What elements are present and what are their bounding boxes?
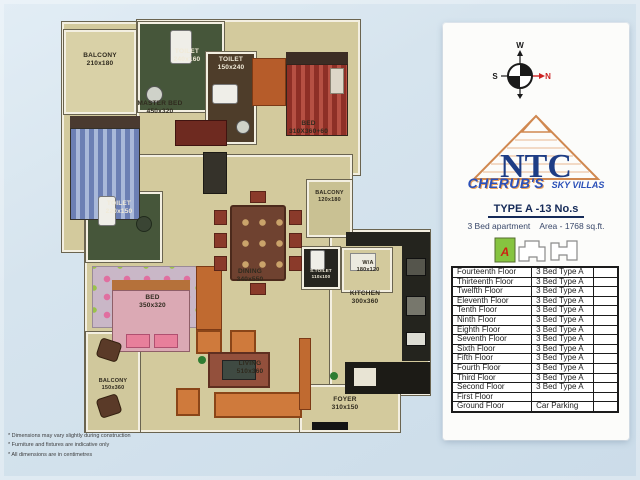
floor-extra-cell [593,392,618,402]
room-balcony-right [307,180,352,237]
footnotes: * Dimensions may vary slightly during co… [8,432,131,460]
kitchen-appliance [406,258,426,276]
floor-type-cell: 3 Bed Type A [532,287,594,297]
room-dims: 300x360 [330,298,400,306]
room-name: MASTER BED [105,100,215,108]
room-dims: 310x150 [300,404,390,412]
apartment-info-beds: 3 Bed apartment [467,221,530,231]
room-label-living: LIVING 510x360 [210,360,290,376]
floor-type-cell: Car Parking [532,402,594,412]
room-label-balcony-right: BALCONY 120x180 [307,190,352,204]
floor-name-cell: Ninth Floor [452,315,532,325]
washbasin [212,84,238,104]
shower-icon [236,120,250,134]
floor-name-cell: Fourteenth Floor [452,267,532,277]
dining-chair [250,191,266,203]
floor-table-row: Twelfth Floor3 Bed Type A [452,287,618,297]
room-label-master-bed: MASTER BED 450x320 [105,100,215,116]
floor-name-cell: Twelfth Floor [452,287,532,297]
room-dims: 120x180 [307,197,352,204]
dining-chair [289,233,302,248]
room-dims: 150x240 [206,64,256,72]
living-armchair [176,388,200,416]
type-title: TYPE A -13 No.s [443,203,629,215]
brochure-page: BALCONY 210x180 TOILET 240x160 TOILET 15… [0,0,640,480]
room-name: KITCHEN [330,290,400,298]
floor-table-row: Second Floor3 Bed Type A [452,383,618,393]
room-label-s-toilet: S.TOILET 110x100 [302,268,340,279]
terrace-accent [252,58,286,106]
living-armchair [196,330,222,354]
footnote-line: * All dimensions are in centimetres [8,451,131,460]
floor-type-cell: 3 Bed Type A [532,383,594,393]
floor-extra-cell [593,335,618,345]
room-label-bed3: BED 350x320 [110,294,195,310]
floor-extra-cell [593,344,618,354]
floor-extra-cell [593,306,618,316]
room-label-balcony-bottom-left: BALCONY 150x360 [86,378,140,392]
master-wardrobe [175,120,227,146]
floor-type-cell: 3 Bed Type A [532,315,594,325]
floor-table-row: Ninth Floor3 Bed Type A [452,315,618,325]
bed2-pillow [330,68,344,94]
room-name: TOILET [150,48,224,56]
footnote-line: * Dimensions may vary slightly during co… [8,432,131,441]
room-name: W/A [342,260,394,267]
plant-icon [330,372,338,380]
brand-name: CHERUB'S [468,175,545,191]
room-label-wa: W/A 180x120 [342,260,394,274]
bed3-pillow [154,334,178,348]
floor-extra-cell [593,383,618,393]
floor-type-cell: 3 Bed Type A [532,335,594,345]
room-label-dining: DINING 340x550 [210,268,290,284]
room-dims: 180x120 [342,267,394,274]
floor-table-row: Seventh Floor3 Bed Type A [452,335,618,345]
floor-name-cell: Fourth Floor [452,363,532,373]
floor-table-row: Ground FloorCar Parking [452,402,618,412]
shower-icon [136,216,152,232]
dining-chair [289,256,302,271]
living-armchair [230,330,256,354]
dining-chair [214,210,227,225]
bed3-headboard [112,280,190,290]
floor-table-row: Fourteenth Floor3 Bed Type A [452,267,618,277]
room-dims: 340x550 [210,276,290,284]
bed2-headboard [286,52,348,64]
floor-extra-cell [593,354,618,364]
type-title-text: TYPE A -13 No.s [488,203,585,218]
master-dresser [203,152,227,194]
room-dims: 210x180 [64,60,136,68]
footnote-line: * Furniture and fixtures are indicative … [8,441,131,450]
floor-extra-cell [593,373,618,383]
brand-line: CHERUB'S SKY VILLAS [443,175,629,193]
floor-table-row: Fourth Floor3 Bed Type A [452,363,618,373]
room-name: BED [110,294,195,302]
floor-extra-cell [593,325,618,335]
keyplan-graphic: A [493,233,579,265]
floor-name-cell: Seventh Floor [452,335,532,345]
floor-name-cell: Second Floor [452,383,532,393]
room-dims: 310X360+60 [257,128,360,136]
floor-extra-cell [593,267,618,277]
compass-north-label: N [545,72,551,81]
room-name: BALCONY [86,378,140,385]
floor-extra-cell [593,315,618,325]
floor-name-cell: Ground Floor [452,402,532,412]
apartment-info: 3 Bed apartment Area - 1768 sq.ft. [443,221,629,231]
room-label-balcony-top-left: BALCONY 210x180 [64,52,136,68]
dining-chair [289,210,302,225]
room-dims: 220x150 [88,208,150,216]
apartment-info-area: Area - 1768 sq.ft. [539,221,604,231]
room-label-kitchen: KITCHEN 300x360 [330,290,400,306]
floor-table: Fourteenth Floor3 Bed Type AThirteenth F… [451,266,619,413]
dining-chair [214,233,227,248]
kitchen-counter-top [346,232,430,246]
brand-tagline: SKY VILLAS [552,180,605,190]
compass-west-label: W [516,41,524,50]
kitchen-appliance [406,296,426,316]
living-sofa [214,392,302,418]
room-dims: 110x100 [302,274,340,280]
room-name: DINING [210,268,290,276]
room-label-toilet-3: TOILET 220x150 [88,200,150,216]
floor-extra-cell [593,296,618,306]
room-dims: 450x320 [105,108,215,116]
floor-table-body: Fourteenth Floor3 Bed Type AThirteenth F… [452,267,618,412]
room-label-toilet-common: TOILET 150x240 [206,56,256,72]
room-name: BED [257,120,360,128]
plant-icon [198,356,206,364]
room-name: BALCONY [64,52,136,60]
floor-extra-cell [593,277,618,287]
room-dims: 350x320 [110,302,195,310]
dining-chair [250,283,266,295]
floor-table-row: Fifth Floor3 Bed Type A [452,354,618,364]
room-name: LIVING [210,360,290,368]
info-panel: W S N NTC CHERUB'S SKY VILLAS TYPE A -13… [443,23,629,440]
compass-icon: W S N [488,41,552,109]
floor-type-cell: 3 Bed Type A [532,267,594,277]
foyer-doormat [312,422,348,430]
room-dims: 150x360 [86,385,140,392]
lobby-door [354,368,376,386]
room-name: BALCONY [307,190,352,197]
floor-type-cell: 3 Bed Type A [532,354,594,364]
bed3-pillow [126,334,150,348]
floor-extra-cell [593,287,618,297]
room-name: TOILET [88,200,150,208]
room-label-foyer: FOYER 310x150 [300,396,390,412]
floor-extra-cell [593,363,618,373]
floor-type-cell: 3 Bed Type A [532,363,594,373]
compass-south-label: S [492,72,498,81]
room-dims: 510x360 [210,368,290,376]
floor-extra-cell [593,402,618,412]
master-bed-headboard [70,116,140,128]
room-name: TOILET [206,56,256,64]
room-label-bed2: BED 310X360+60 [257,120,360,136]
toilet-cistern [310,250,325,270]
floor-name-cell: Fifth Floor [452,354,532,364]
room-name: FOYER [300,396,390,404]
kitchen-sink [406,332,426,346]
keyplan-unit-label: A [500,245,510,259]
